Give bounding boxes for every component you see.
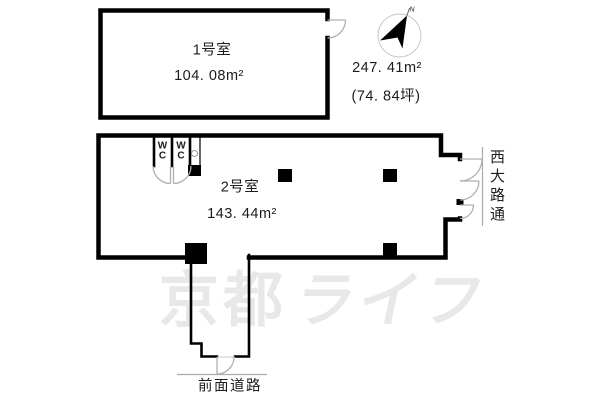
room2-door-arc-top bbox=[460, 159, 482, 181]
compass-north-label: N bbox=[409, 7, 414, 14]
room1-area-value: 104. 08m² bbox=[174, 68, 244, 84]
room2-door-arc-middle bbox=[460, 181, 479, 200]
room2-label: 2号室 bbox=[221, 176, 260, 197]
total-area-value: 247. 41m² bbox=[352, 60, 422, 76]
floorplan-drawing: 京都 ライフ bbox=[0, 0, 600, 400]
compass-icon bbox=[378, 8, 421, 57]
road-name-right: 西大路通 bbox=[486, 149, 507, 225]
wc-label-left: W C bbox=[158, 142, 167, 161]
watermark-kanji-text: 京都 bbox=[159, 267, 287, 334]
road-name-bottom: 前面道路 bbox=[198, 375, 262, 396]
pillar bbox=[185, 243, 207, 264]
pillar bbox=[383, 169, 397, 182]
pillar bbox=[383, 243, 397, 259]
corridor-door-arc bbox=[217, 357, 234, 374]
room2-outline-right bbox=[249, 219, 460, 258]
room2-area-value: 143. 44m² bbox=[207, 206, 277, 222]
wc-door-arc-left bbox=[153, 166, 171, 184]
room1-label: 1号室 bbox=[193, 39, 232, 60]
pillar bbox=[278, 169, 292, 182]
watermark-kana-text: ライフ bbox=[288, 267, 494, 334]
room1-outline bbox=[101, 11, 328, 118]
wc-label-right: W C bbox=[176, 142, 185, 161]
floorplan-page: 京都 ライフ bbox=[0, 0, 600, 400]
wc-knob-icon bbox=[192, 151, 198, 157]
room1-door-arc bbox=[328, 20, 346, 38]
total-tsubo-value: (74. 84坪) bbox=[352, 85, 421, 106]
